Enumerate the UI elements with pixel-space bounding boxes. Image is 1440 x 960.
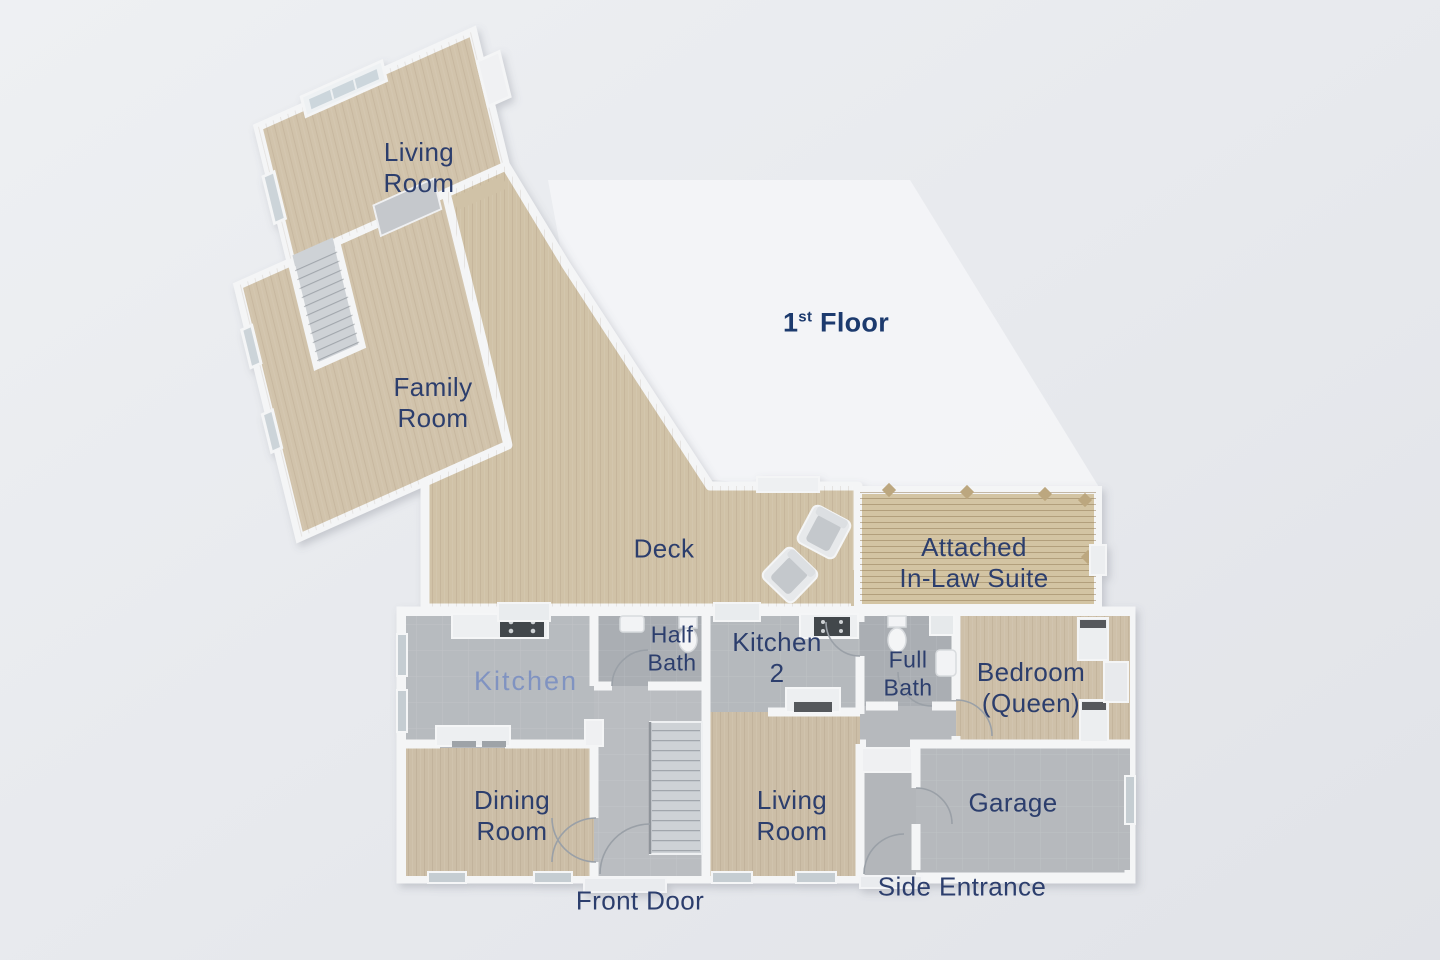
living-room-upper-label: Living Room [384, 137, 455, 199]
main-stairs-treads [652, 724, 700, 852]
passthrough-opening [452, 741, 476, 747]
floor-plan-drawing [0, 0, 1440, 960]
floor-title-text: Floor [812, 308, 889, 338]
dining-window [534, 872, 572, 883]
passthrough-opening [482, 741, 506, 747]
full-bath-label: Full Bath [884, 646, 933, 701]
deck-to-kitchen-door [498, 603, 550, 621]
deck-railing-gate [757, 477, 819, 492]
kitchen2-label: Kitchen 2 [732, 627, 822, 689]
dining-window [428, 872, 466, 883]
hall-closet [585, 720, 603, 746]
bedroom-closet [1104, 662, 1128, 702]
kitchen-window [397, 634, 407, 676]
family-room-label: Family Room [394, 372, 473, 434]
full-bath-shower [930, 615, 954, 635]
kitchen-label: Kitchen [474, 665, 578, 697]
dresser-top [1082, 702, 1106, 710]
burner [839, 629, 843, 633]
side-entrance-label: Side Entrance [878, 871, 1047, 902]
living-window [712, 872, 752, 883]
garage-window [1125, 776, 1135, 824]
dresser-top [1080, 620, 1106, 628]
toilet-tank [888, 616, 906, 627]
living-window [796, 872, 836, 883]
deck-to-kitchen2-door [714, 603, 760, 621]
half-bath-label: Half Bath [648, 621, 697, 676]
vestibule-closet [862, 748, 912, 772]
burner [509, 629, 514, 634]
floor-title-ordinal: st [798, 309, 812, 326]
burner [839, 620, 843, 624]
floor-title-number: 1 [783, 308, 798, 338]
deck-label: Deck [634, 533, 695, 564]
half-bath-sink [620, 616, 644, 632]
full-bath-sink [936, 650, 956, 676]
burner [821, 620, 825, 624]
floor-title: 1st Floor [783, 308, 889, 339]
dining-room-label: Dining Room [474, 785, 550, 847]
inlaw-suite-label: Attached In-Law Suite [899, 532, 1048, 594]
kitchen2-island-stove [794, 702, 832, 712]
kitchen-window [397, 690, 407, 732]
bedroom-label: Bedroom (Queen) [977, 657, 1085, 719]
living-room-lower-label: Living Room [757, 785, 828, 847]
burner [531, 629, 536, 634]
deck-step [1090, 545, 1106, 575]
floor-plan-image: Living Room Family Room Deck Attached In… [0, 0, 1440, 960]
garage-label: Garage [968, 787, 1057, 818]
front-door-label: Front Door [576, 885, 704, 916]
